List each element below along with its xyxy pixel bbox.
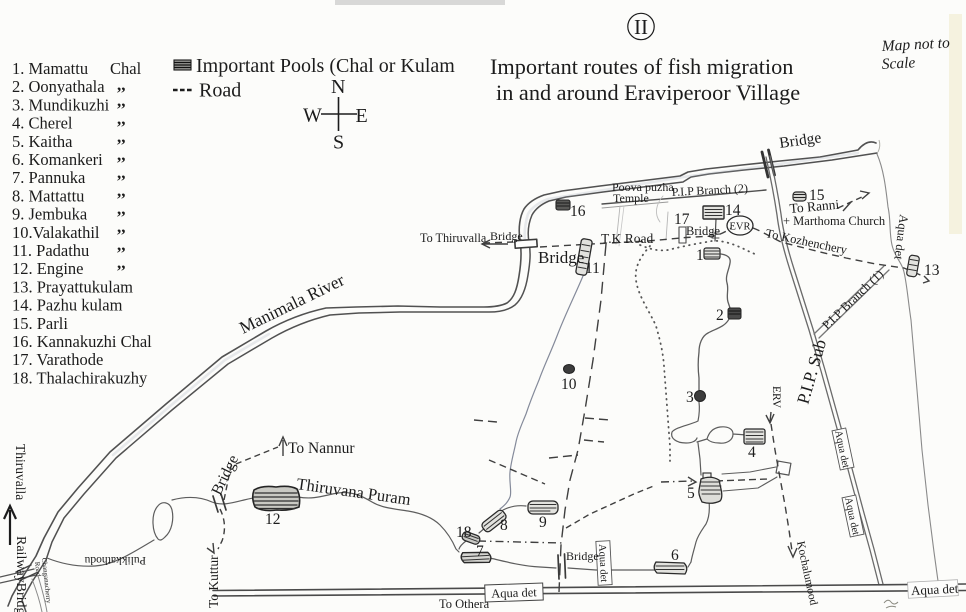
svg-text:13. Prayattukulam: 13. Prayattukulam	[12, 277, 133, 296]
svg-text:2. Oonyathala: 2. Oonyathala	[12, 77, 105, 96]
svg-text:8: 8	[500, 517, 508, 534]
svg-text:9: 9	[539, 514, 547, 531]
svg-text:N: N	[331, 76, 345, 98]
svg-text:,,: ,,	[117, 181, 126, 200]
svg-text:,,: ,,	[117, 145, 126, 164]
svg-text:,,: ,,	[117, 253, 126, 272]
svg-text:18: 18	[456, 524, 472, 541]
svg-text:E: E	[356, 105, 368, 127]
svg-text:W: W	[303, 105, 322, 127]
svg-text:9. Jembuka: 9. Jembuka	[12, 205, 88, 224]
svg-text:14. Pazhu kulam: 14. Pazhu kulam	[12, 296, 123, 315]
svg-text:,,: ,,	[117, 217, 126, 236]
svg-text:16: 16	[570, 203, 586, 220]
svg-text:,,: ,,	[117, 163, 126, 182]
svg-text:,,: ,,	[117, 91, 126, 110]
svg-text:5. Kaitha: 5. Kaitha	[12, 132, 73, 151]
svg-text:in and around Eraviperoor Vill: in and around Eraviperoor Village	[496, 80, 800, 105]
svg-text:To Thiruvalla: To Thiruvalla	[420, 231, 487, 245]
svg-text:Pulikkathodu: Pulikkathodu	[84, 554, 146, 566]
svg-text:3: 3	[686, 389, 694, 406]
svg-text:6: 6	[671, 547, 679, 564]
svg-text:Map not to: Map not to	[880, 34, 950, 55]
svg-text:,,: ,,	[117, 109, 126, 128]
svg-text:4: 4	[748, 444, 756, 461]
svg-text:+ Marthoma Church: + Marthoma Church	[783, 214, 886, 228]
svg-text:Road: Road	[33, 561, 43, 577]
svg-text:Scale: Scale	[881, 54, 916, 73]
svg-text:Important routes of fish migra: Important routes of fish migration	[490, 54, 793, 79]
svg-text:Bridge: Bridge	[490, 229, 523, 243]
svg-text:12: 12	[265, 511, 281, 528]
svg-text:15. Parli: 15. Parli	[12, 314, 68, 333]
svg-text:10: 10	[561, 376, 577, 393]
svg-text:EVR: EVR	[730, 222, 751, 233]
svg-text:To Nannur: To Nannur	[288, 440, 355, 457]
svg-text:18. Thalachirakuzhy: 18. Thalachirakuzhy	[12, 368, 148, 387]
svg-text:8. Mattattu: 8. Mattattu	[12, 186, 84, 205]
svg-text:Chal: Chal	[110, 59, 142, 78]
svg-text:S: S	[333, 132, 344, 154]
svg-text:2: 2	[716, 307, 724, 324]
svg-text:RailwayBridge: RailwayBridge	[13, 536, 28, 612]
svg-text:5: 5	[687, 485, 695, 502]
svg-text:Bridge: Bridge	[686, 224, 720, 238]
svg-text:Temple: Temple	[613, 191, 649, 205]
svg-text:10.Valakathil: 10.Valakathil	[12, 223, 100, 242]
svg-text:T.K Road: T.K Road	[601, 231, 653, 246]
svg-text:To Othera: To Othera	[439, 597, 490, 611]
svg-text:1: 1	[696, 247, 704, 264]
svg-text:Thiruvalla: Thiruvalla	[13, 444, 28, 500]
svg-text:ERV: ERV	[770, 386, 782, 409]
svg-text:3. Mundikuzhi: 3. Mundikuzhi	[12, 95, 110, 114]
svg-text:,,: ,,	[117, 199, 126, 218]
svg-text:7: 7	[476, 543, 484, 560]
svg-text:Road: Road	[199, 80, 241, 102]
svg-text:7. Pannuka: 7. Pannuka	[12, 168, 86, 187]
svg-text:II: II	[634, 15, 648, 39]
svg-text:12. Engine: 12. Engine	[12, 259, 84, 278]
svg-text:Important Pools (Chal or Kulam: Important Pools (Chal or Kulam	[196, 55, 455, 77]
svg-text:Aqua det: Aqua det	[911, 581, 959, 598]
svg-text:,,: ,,	[117, 235, 126, 254]
svg-text:Bridge: Bridge	[538, 248, 584, 267]
svg-text:6. Komankeri: 6. Komankeri	[12, 150, 103, 169]
svg-text:17. Varathode: 17. Varathode	[12, 350, 103, 369]
svg-text:11: 11	[585, 260, 600, 277]
svg-text:Aqua det: Aqua det	[491, 585, 537, 601]
svg-text:1. Mamattu: 1. Mamattu	[12, 59, 88, 78]
svg-text:13: 13	[924, 262, 940, 279]
svg-text:Bridge: Bridge	[566, 549, 599, 563]
svg-text:16. Kannakuzhi Chal: 16. Kannakuzhi Chal	[12, 332, 152, 351]
svg-text:11. Padathu: 11. Padathu	[12, 241, 89, 260]
svg-text:,,: ,,	[117, 127, 126, 146]
svg-text:4. Cherel: 4. Cherel	[12, 114, 73, 133]
svg-text:To Kuttur: To Kuttur	[206, 555, 221, 608]
